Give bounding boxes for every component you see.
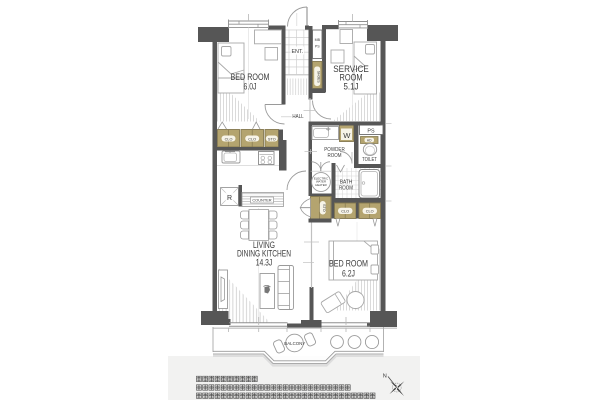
- svg-text:W: W: [343, 131, 351, 140]
- svg-text:HEATER: HEATER: [315, 183, 327, 187]
- svg-text:R: R: [227, 195, 232, 202]
- svg-text:CLO: CLO: [248, 137, 256, 141]
- svg-text:HALL: HALL: [292, 114, 304, 120]
- svg-text:ENT.: ENT.: [291, 49, 303, 55]
- svg-text:COUNTER: COUNTER: [252, 198, 271, 203]
- svg-text:PS: PS: [367, 129, 375, 135]
- svg-text:6.0J: 6.0J: [244, 82, 257, 92]
- svg-text:SHOES: SHOES: [316, 71, 320, 84]
- svg-text:CLO: CLO: [366, 210, 374, 214]
- svg-text:5.1J: 5.1J: [344, 81, 359, 91]
- svg-text:STO: STO: [322, 204, 326, 212]
- svg-text:BED ROOM: BED ROOM: [329, 259, 368, 269]
- svg-text:N: N: [383, 374, 387, 380]
- svg-text:PS: PS: [315, 45, 320, 49]
- svg-text:STO: STO: [268, 137, 276, 141]
- svg-text:6.2J: 6.2J: [342, 268, 355, 278]
- svg-text:AD: AD: [367, 138, 372, 142]
- svg-text:BALCONY: BALCONY: [284, 341, 305, 346]
- svg-text:ROOM: ROOM: [339, 186, 353, 192]
- svg-text:14.3J: 14.3J: [256, 258, 273, 268]
- svg-text:MB: MB: [315, 38, 321, 42]
- svg-text:ROOM: ROOM: [328, 153, 342, 159]
- svg-text:CLO: CLO: [225, 137, 233, 141]
- svg-text:CLO: CLO: [341, 210, 349, 214]
- svg-text:TOILET: TOILET: [362, 157, 377, 163]
